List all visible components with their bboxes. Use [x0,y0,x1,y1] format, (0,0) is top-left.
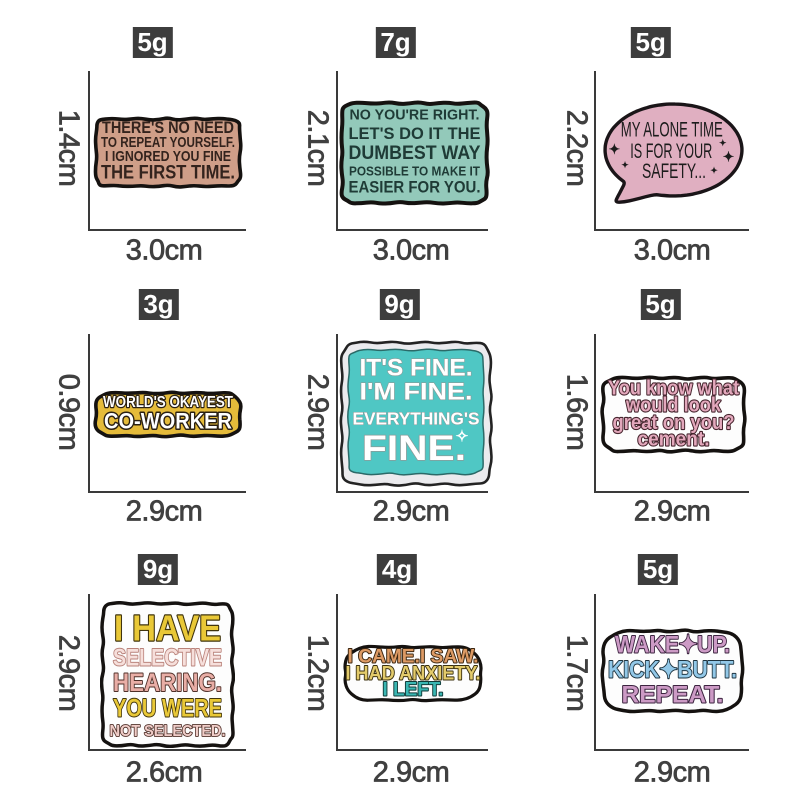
svg-text:SAFETY...: SAFETY... [642,160,706,183]
svg-text:NOT SELECTED.: NOT SELECTED. [110,723,226,740]
svg-text:EVERYTHING'S: EVERYTHING'S [353,409,480,429]
svg-text:MY ALONE TIME: MY ALONE TIME [621,119,723,142]
svg-text:NO YOU'RE RIGHT.: NO YOU'RE RIGHT. [350,108,480,124]
svg-text:LET'S DO IT THE: LET'S DO IT THE [349,124,481,143]
svg-text:I'M FINE.: I'M FINE. [360,379,473,406]
svg-text:KICK✦BUTT.: KICK✦BUTT. [608,657,737,684]
svg-text:DUMBEST WAY: DUMBEST WAY [349,142,481,164]
svg-text:cement.: cement. [638,429,710,451]
svg-text:THE FIRST TIME.: THE FIRST TIME. [101,162,235,184]
svg-text:SELECTIVE: SELECTIVE [113,645,222,672]
svg-text:FINE.: FINE. [362,429,466,468]
svg-text:✦: ✦ [710,165,718,175]
svg-text:I HAVE: I HAVE [114,608,221,649]
svg-text:IT'S FINE.: IT'S FINE. [360,355,473,382]
svg-text:✦: ✦ [723,149,735,165]
svg-text:✦: ✦ [621,160,629,170]
svg-text:✧: ✧ [455,429,468,446]
svg-text:WAKE✦UP.: WAKE✦UP. [615,632,730,659]
svg-text:HEARING.: HEARING. [113,669,222,697]
svg-text:I LEFT.: I LEFT. [383,680,444,701]
svg-text:✦: ✦ [719,138,727,148]
svg-text:POSSIBLE TO MAKE IT: POSSIBLE TO MAKE IT [349,164,480,179]
svg-text:CO-WORKER: CO-WORKER [104,409,232,434]
svg-text:EASIER FOR YOU.: EASIER FOR YOU. [349,178,481,197]
svg-text:YOU WERE: YOU WERE [113,695,222,723]
svg-text:REPEAT.: REPEAT. [622,682,724,709]
svg-text:✦: ✦ [609,141,621,157]
